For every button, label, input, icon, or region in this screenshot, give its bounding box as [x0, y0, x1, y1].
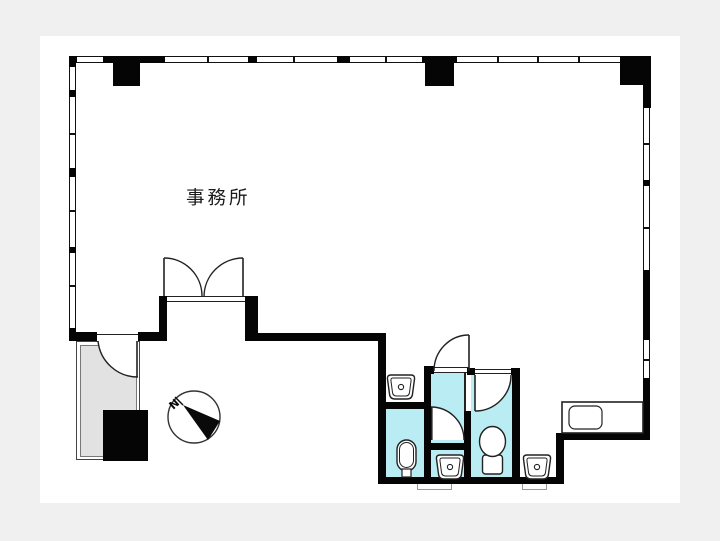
wall [69, 332, 97, 341]
wall [467, 368, 475, 375]
entrance-jamb [159, 296, 167, 341]
room-washroom-sink-niche [431, 450, 464, 477]
window-mullion [578, 56, 580, 63]
utility-door-threshold [97, 334, 138, 342]
room-label-office: 事務所 [186, 184, 286, 210]
wall [245, 333, 386, 341]
wall [424, 367, 431, 484]
wall [556, 433, 564, 484]
room-washroom [431, 373, 464, 443]
wall [424, 366, 434, 374]
window-band-left [69, 56, 76, 333]
wall-segment [643, 378, 650, 440]
window-mullion [497, 56, 499, 63]
wall-segment [337, 56, 350, 63]
window-mullion [537, 56, 539, 63]
wall-segment [643, 180, 650, 186]
wall-segment [69, 90, 76, 97]
column [113, 56, 140, 86]
room-wc [471, 375, 512, 477]
column [103, 410, 148, 461]
wall-segment [69, 56, 76, 67]
wall [138, 332, 159, 341]
column [425, 56, 454, 86]
wall [556, 433, 650, 440]
door-threshold [522, 484, 547, 490]
floor-plan: 事務所 [0, 0, 720, 541]
wall-segment [643, 84, 650, 108]
window-mullion [643, 143, 650, 145]
window-mullion [69, 210, 76, 212]
window-mullion [643, 227, 650, 229]
door-threshold [417, 484, 452, 490]
window-mullion [643, 359, 650, 361]
window-mullion [207, 56, 209, 63]
wall [512, 368, 520, 484]
corner-column [620, 56, 651, 85]
partition-line [464, 373, 466, 411]
wall-segment [69, 247, 76, 253]
wall-segment [248, 56, 257, 63]
wall [424, 443, 471, 450]
wall-segment [69, 168, 76, 177]
wc-door-threshold [475, 369, 511, 374]
window-mullion [69, 285, 76, 287]
window-mullion [385, 56, 387, 63]
window-mullion [293, 56, 295, 63]
room-urinal [385, 409, 424, 477]
wall-segment [643, 270, 650, 340]
wall [378, 477, 564, 484]
window-mullion [69, 133, 76, 135]
entrance-threshold [167, 296, 245, 302]
